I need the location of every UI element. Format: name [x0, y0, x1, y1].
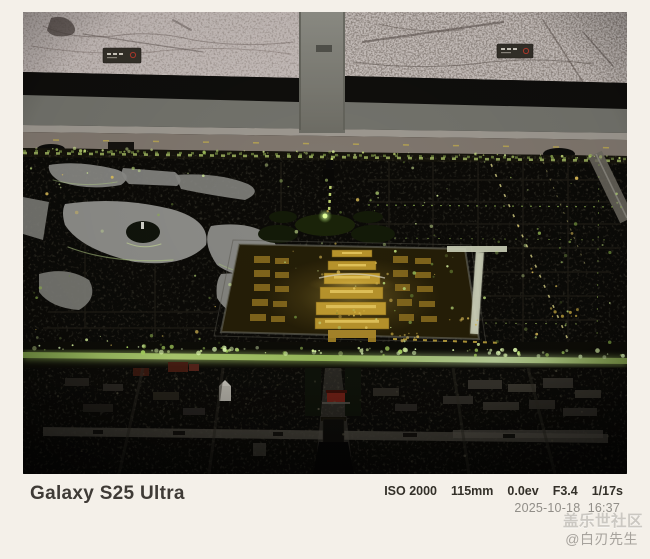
exif-shutter: 1/17s [592, 484, 623, 498]
exif-exposure: 0.0ev [507, 484, 538, 498]
device-name: Galaxy S25 Ultra [30, 483, 185, 505]
bottom-shade [23, 372, 627, 474]
photo-card: Galaxy S25 Ultra ISO 2000115mm0.0evF3.41… [0, 0, 650, 559]
photo-night-city-model [23, 12, 627, 474]
exif-focal-length: 115mm [451, 484, 493, 498]
photo-scene [23, 12, 627, 474]
exif-iso: ISO 2000 [384, 484, 437, 498]
exif-aperture: F3.4 [553, 484, 578, 498]
username-watermark: @白刃先生 [565, 529, 638, 549]
exif-info: ISO 2000115mm0.0evF3.41/17s [384, 484, 623, 498]
watermark-bar: Galaxy S25 Ultra ISO 2000115mm0.0evF3.41… [0, 474, 650, 559]
community-watermark: 盖乐世社区 [563, 509, 643, 531]
